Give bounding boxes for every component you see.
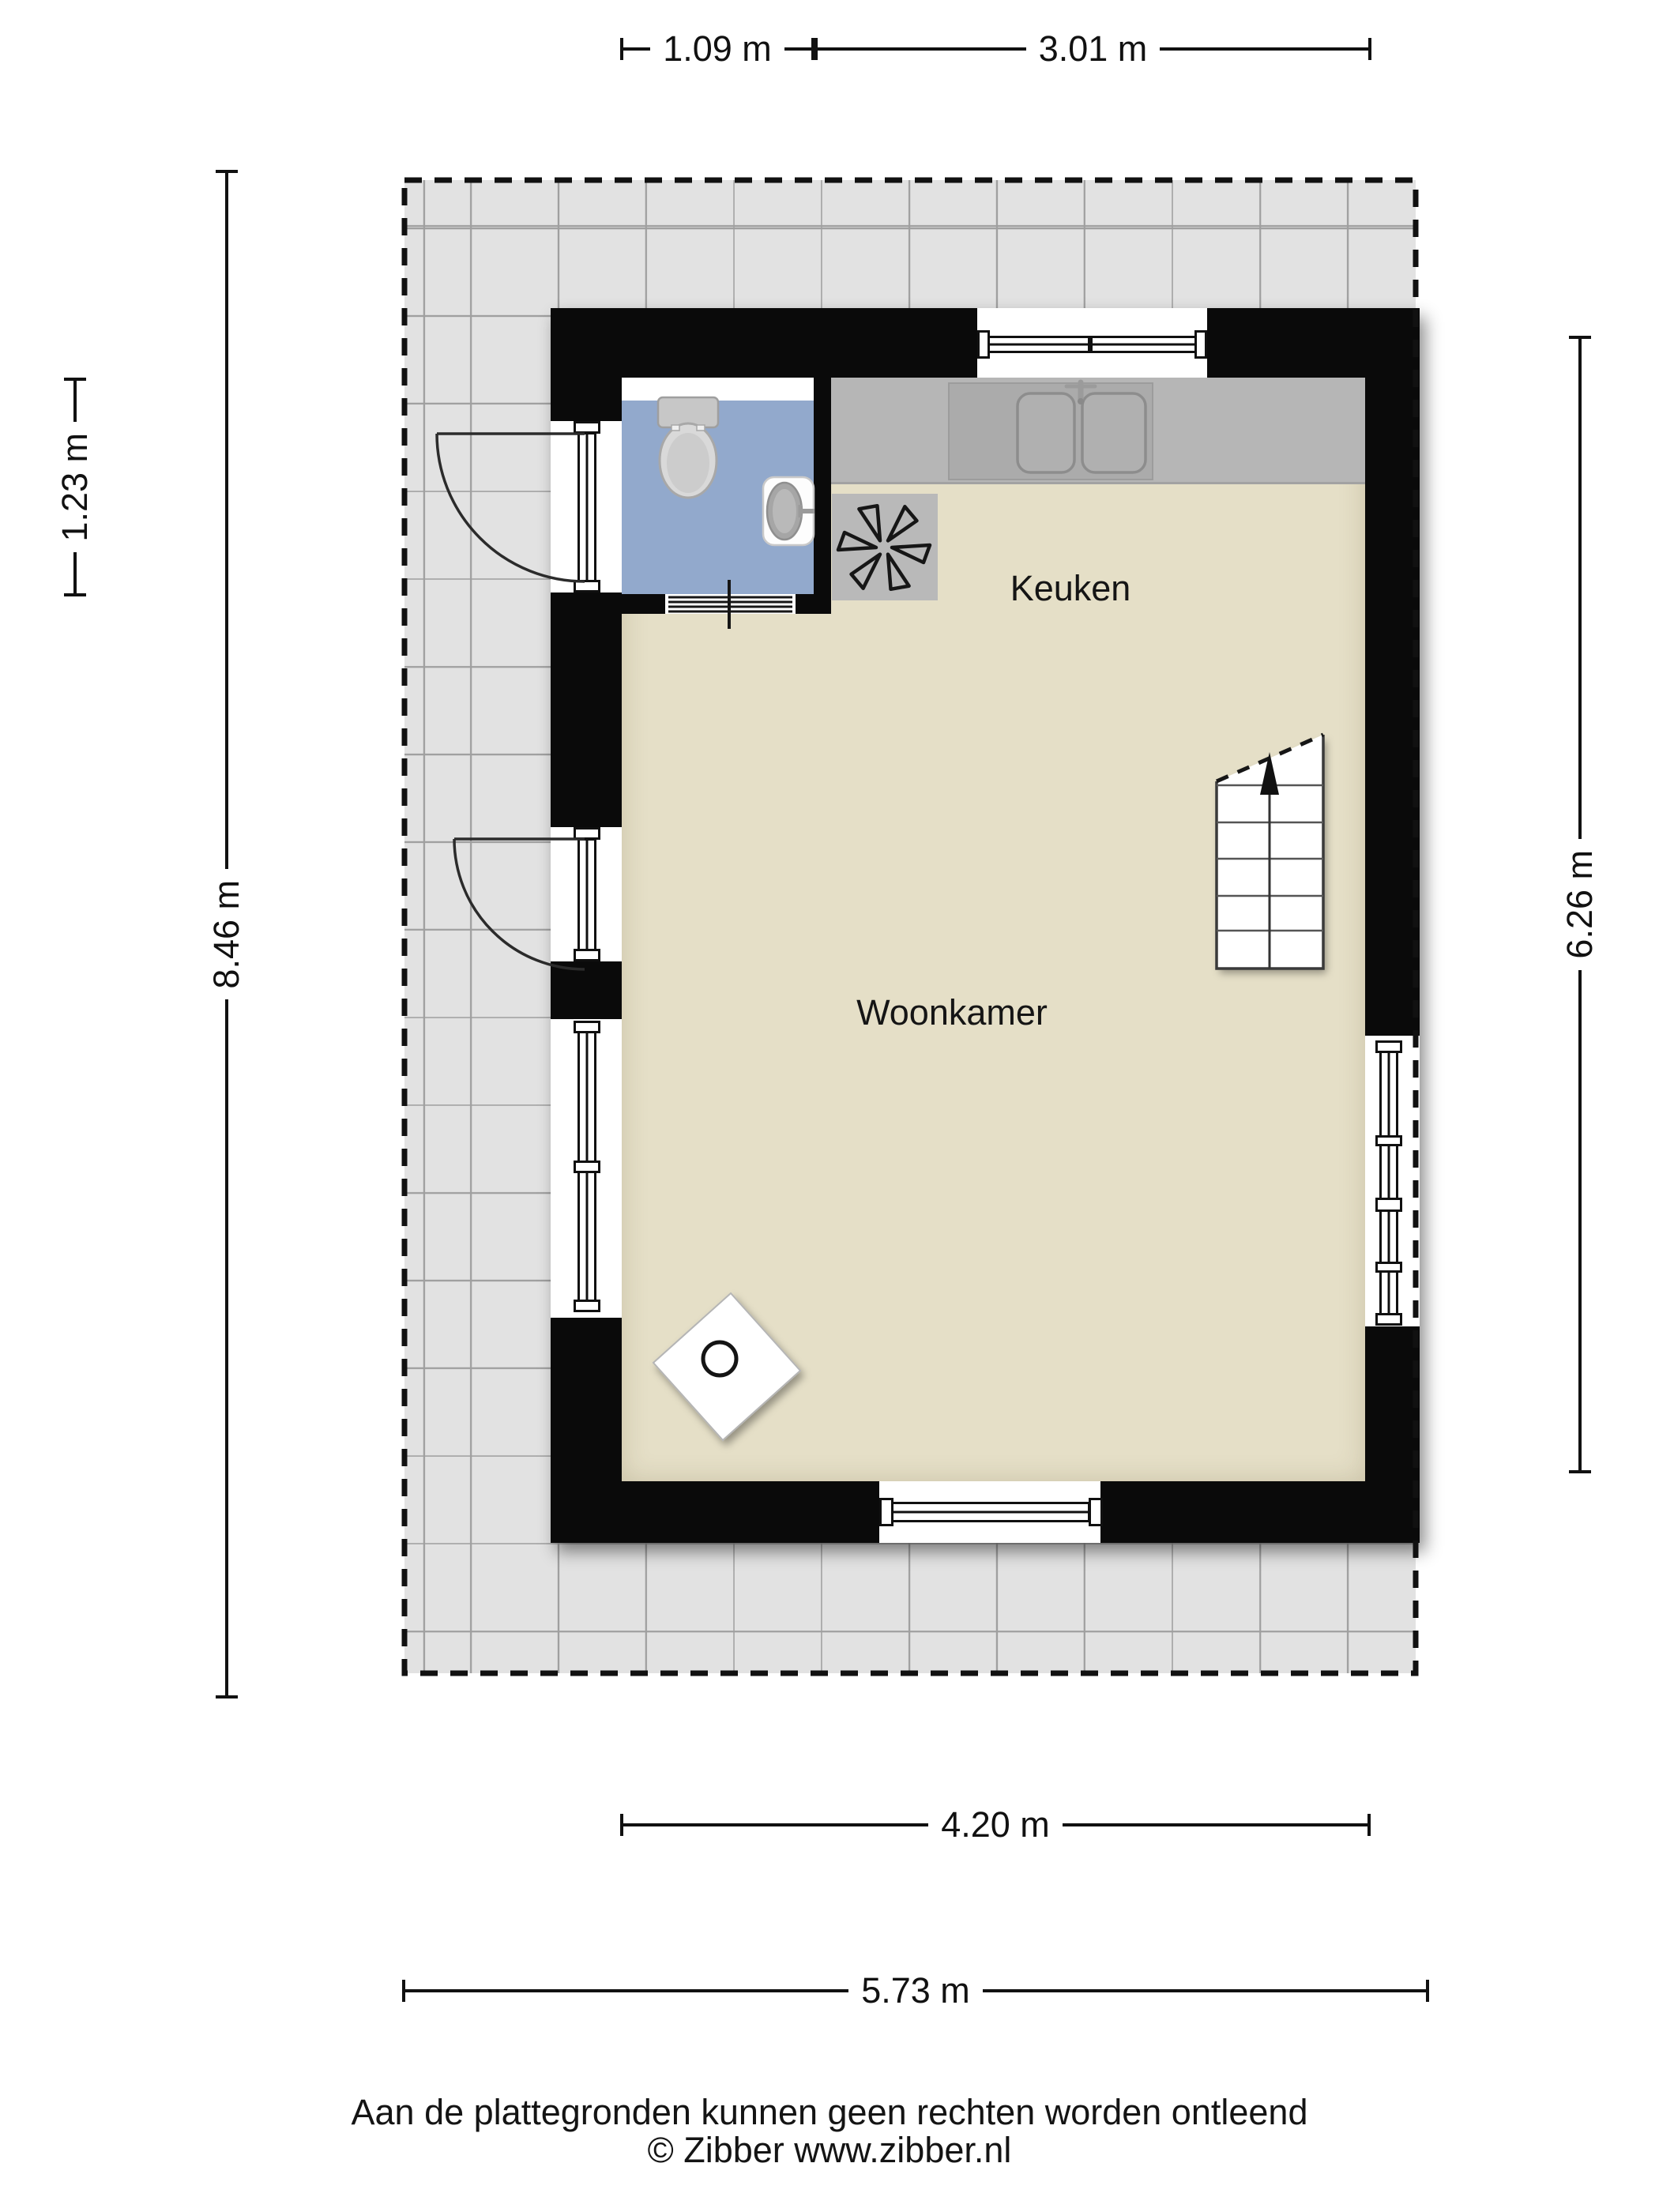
dimension-line (983, 1989, 1426, 1992)
bathroom-door-opening (665, 594, 796, 614)
dimension-line (623, 47, 650, 51)
dimension-label: 6.26 m (1559, 839, 1601, 970)
door-left-lower-frame (577, 838, 596, 951)
dimension-line (225, 173, 228, 869)
dimension-label: 1.23 m (55, 422, 96, 553)
window-top-mullion (1088, 336, 1093, 353)
dimension-line (1160, 47, 1368, 51)
dimension-line (1578, 970, 1582, 1470)
dimension-label: 3.01 m (1026, 31, 1161, 67)
dimension-label: 8.46 m (206, 869, 247, 1000)
dimension-tick (216, 1695, 238, 1698)
dimension-line (405, 1989, 848, 1992)
window-left-cap-top (574, 1021, 600, 1033)
room-label-kitchen: Keuken (1010, 568, 1131, 609)
dimension-label: 1.09 m (650, 31, 784, 67)
window-top-cap-right (1194, 330, 1207, 359)
dimension-tick (1367, 1814, 1371, 1836)
window-right-cap-bottom (1375, 1313, 1402, 1326)
dimension-label: 4.20 m (928, 1807, 1063, 1843)
dimension-tick (1368, 38, 1371, 60)
dimension-bottom-outer: 5.73 m (402, 1973, 1429, 2009)
window-bottom-cap-left (879, 1498, 893, 1526)
dimension-line (73, 381, 77, 422)
door-left-lower-cap-top (574, 827, 600, 840)
door-left-lower-cap-bottom (574, 949, 600, 961)
door-left-upper-frame (577, 432, 596, 582)
dimension-line (1063, 1823, 1367, 1826)
dimension-line (225, 999, 228, 1695)
window-top-cap-left (977, 330, 990, 359)
window-right-cap-top (1375, 1040, 1402, 1053)
window-right-rail-2 (1375, 1198, 1402, 1212)
dimension-left-outer: 8.46 m (209, 170, 245, 1698)
floorplan-page: Keuken Woonkamer 1.09 m 3.01 m 1.23 m 8.… (0, 0, 1659, 2212)
window-left-rail-mid (574, 1161, 600, 1173)
dimension-bottom-inner: 4.20 m (620, 1807, 1371, 1843)
dimension-line (73, 552, 77, 593)
disclaimer-text: Aan de plattegronden kunnen geen rechten… (0, 2092, 1659, 2133)
dimension-tick (64, 593, 86, 596)
bathroom-top-ledge (622, 378, 814, 401)
door-left-upper-cap-top (574, 421, 600, 434)
dimension-top-left: 1.09 m (620, 31, 814, 67)
bathroom-wall-right (814, 378, 831, 614)
wall-right (1365, 308, 1420, 1543)
window-bottom-cap-right (1089, 1498, 1103, 1526)
dimension-right: 6.26 m (1562, 336, 1598, 1473)
window-right-rail-3 (1375, 1262, 1402, 1273)
copyright-text: © Zibber www.zibber.nl (0, 2130, 1659, 2171)
dimension-top-right: 3.01 m (814, 31, 1371, 67)
window-left-cap-bottom (574, 1300, 600, 1312)
dimension-tick (1426, 1980, 1429, 2002)
dimension-tick (1569, 1470, 1591, 1473)
dimension-left-inner: 1.23 m (57, 378, 93, 596)
dimension-line (623, 1823, 928, 1826)
extractor-fan-pad (832, 494, 938, 600)
window-bottom-frame (891, 1502, 1090, 1522)
kitchen-sink-unit (948, 382, 1153, 480)
room-label-living-room: Woonkamer (856, 992, 1048, 1033)
dimension-line (784, 47, 811, 51)
door-left-upper-cap-bottom (574, 580, 600, 592)
bathroom-floor (622, 401, 814, 594)
dimension-line (818, 47, 1026, 51)
dimension-line (1578, 339, 1582, 839)
dimension-label: 5.73 m (848, 1973, 983, 2009)
window-right-rail-1 (1375, 1135, 1402, 1146)
window-right-frame (1379, 1047, 1398, 1319)
